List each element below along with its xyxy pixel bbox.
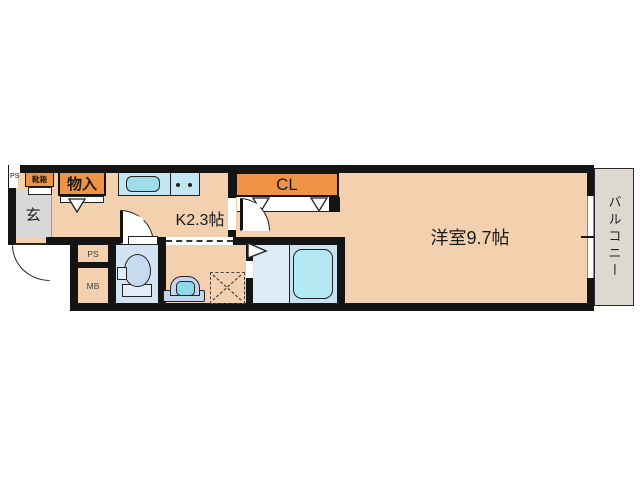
kitchen-sink-icon bbox=[126, 176, 160, 192]
washroom-accordion-line bbox=[166, 240, 233, 242]
shoe-cabinet-label: 靴箱 bbox=[32, 174, 47, 185]
pipe-space-label: PS bbox=[78, 245, 108, 262]
stove-burner-icon bbox=[176, 183, 180, 187]
wall-bath-right bbox=[337, 237, 345, 303]
wall-bottom bbox=[70, 303, 594, 311]
wall-column-left bbox=[70, 245, 78, 303]
hanger-icon bbox=[68, 198, 86, 213]
western-room-label: 洋室9.7帖 bbox=[380, 226, 560, 248]
corner-pipe-space-label-box: PS bbox=[8, 165, 18, 188]
entrance-door-arc bbox=[12, 245, 50, 281]
wall-mid-stub bbox=[158, 237, 166, 245]
wall-column-right bbox=[108, 245, 116, 303]
bath-doorway bbox=[246, 261, 253, 278]
wall-kitchen-divider-upper bbox=[228, 165, 236, 198]
wall-right-upper bbox=[587, 165, 594, 196]
toilet-door bbox=[128, 236, 158, 245]
wall-top bbox=[20, 165, 594, 173]
closet-box: CL bbox=[235, 172, 339, 197]
bathtub bbox=[293, 249, 333, 299]
washing-machine-space bbox=[210, 272, 245, 304]
balcony-label: バルコニー bbox=[605, 195, 624, 280]
corner-pipe-space-label: PS bbox=[10, 173, 17, 181]
closet-side-wall bbox=[329, 197, 340, 212]
meter-box-label: MB bbox=[78, 268, 108, 303]
hall-closet-box: 物入 bbox=[58, 170, 106, 196]
toilet-cistern-box bbox=[117, 267, 127, 280]
wall-right-lower bbox=[587, 278, 594, 311]
hanger-icon bbox=[310, 197, 328, 212]
balcony: バルコニー bbox=[594, 168, 634, 306]
shoe-cabinet-box: 靴箱 bbox=[25, 171, 54, 187]
hall-closet-label: 物入 bbox=[67, 173, 97, 194]
kitchen-label: K2.3帖 bbox=[150, 208, 250, 228]
toilet-bowl bbox=[124, 254, 151, 287]
shoe-cabinet-top bbox=[28, 187, 52, 195]
floorplan: CL 物入 靴箱 bbox=[0, 0, 640, 480]
washbasin-bowl bbox=[176, 281, 195, 296]
wall-entrance-b bbox=[46, 237, 74, 245]
entrance-label: 玄 bbox=[14, 205, 52, 223]
closet-label: CL bbox=[276, 175, 298, 195]
stove-burner-icon bbox=[188, 183, 192, 187]
bath-folding-door-icon bbox=[247, 242, 268, 260]
counter-divider bbox=[170, 172, 171, 196]
